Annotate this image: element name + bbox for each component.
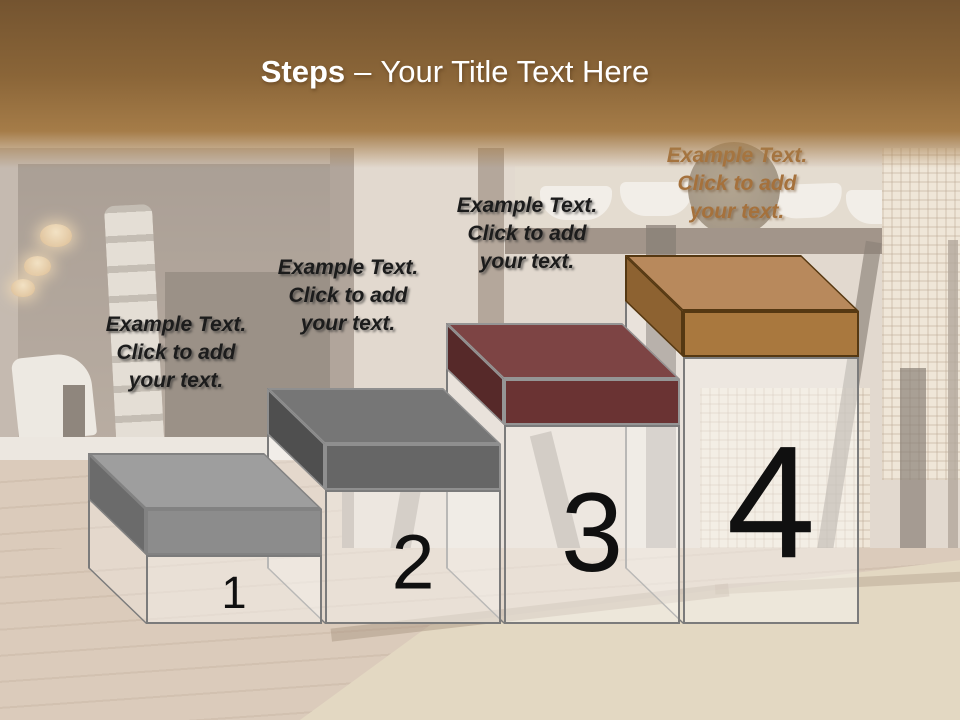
pedestal: 2 <box>325 490 501 624</box>
title-text: Your Title Text Here <box>380 54 649 89</box>
pedestal: 4 <box>683 357 859 624</box>
slab-front-face <box>504 379 680 425</box>
step-number: 2 <box>392 518 435 607</box>
step-number: 1 <box>221 567 246 619</box>
step-number: 3 <box>561 468 623 597</box>
slab-front-face <box>325 444 501 490</box>
step-label-3[interactable]: Example Text. Click to add your text. <box>417 192 637 276</box>
title-separator: – <box>354 54 371 89</box>
title-bar: Steps–Your Title Text Here <box>0 0 960 168</box>
pedestal: 3 <box>504 425 680 624</box>
slide: 1 2 3 4 <box>0 0 960 720</box>
title-keyword: Steps <box>261 54 345 89</box>
slide-title[interactable]: Steps–Your Title Text Here <box>0 52 910 92</box>
slab-front-face <box>683 311 859 357</box>
step-block-1[interactable]: 1 <box>88 453 322 624</box>
pedestal: 1 <box>146 555 322 624</box>
step-number: 4 <box>727 410 816 594</box>
slab-front-face <box>146 509 322 555</box>
